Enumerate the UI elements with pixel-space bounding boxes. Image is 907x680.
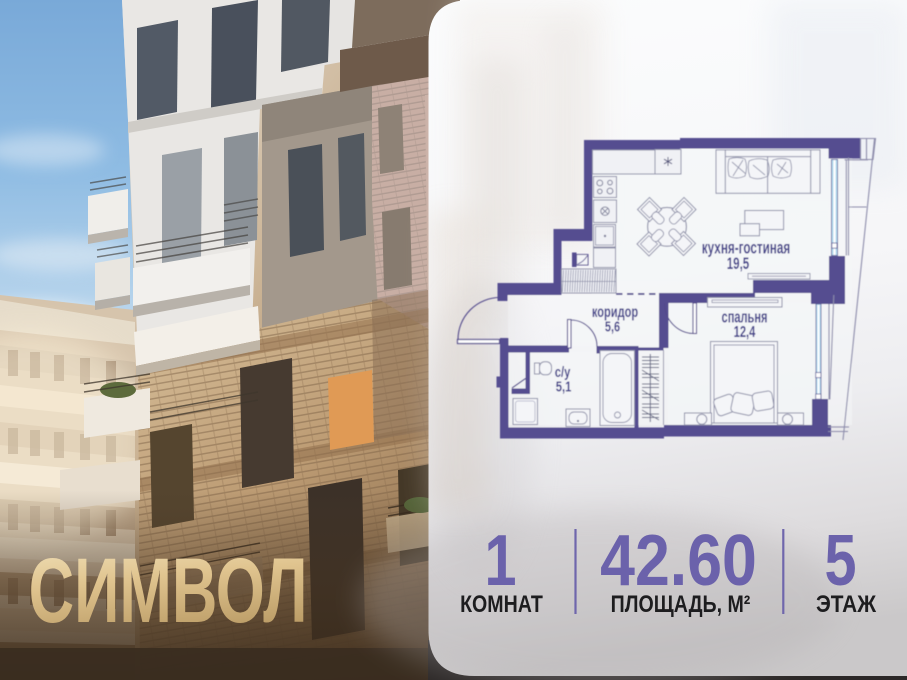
- svg-text:5,6: 5,6: [605, 318, 620, 335]
- svg-text:КОМНАТ: КОМНАТ: [460, 590, 543, 618]
- svg-text:ЭТАЖ: ЭТАЖ: [816, 589, 876, 617]
- svg-text:СИМВОЛ: СИМВОЛ: [29, 539, 308, 642]
- svg-text:1: 1: [484, 520, 516, 601]
- svg-text:12,4: 12,4: [734, 322, 756, 341]
- svg-text:5,1: 5,1: [556, 378, 572, 395]
- svg-text:ПЛОЩАДЬ, М²: ПЛОЩАДЬ, М²: [611, 590, 751, 618]
- svg-text:19,5: 19,5: [727, 255, 750, 274]
